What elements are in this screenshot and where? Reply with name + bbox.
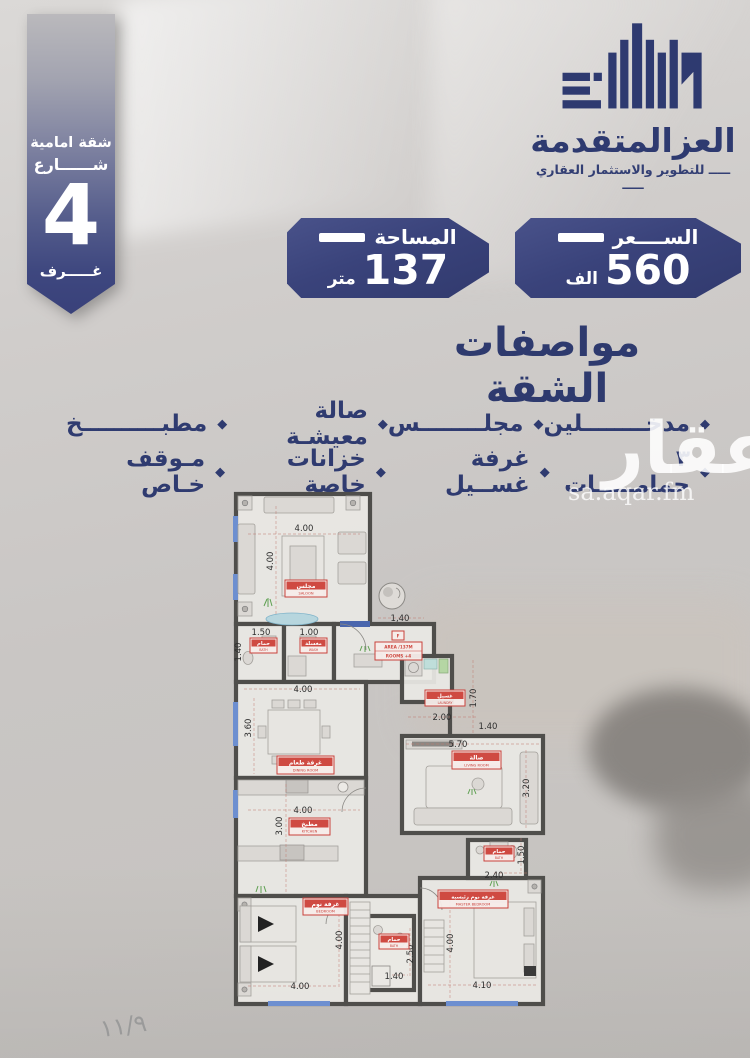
area-unit: متر bbox=[328, 269, 356, 289]
street-rooms-ribbon: شقة امامية شــــــارع 4 غـــــرف bbox=[27, 14, 115, 314]
page-number: ١١/٩ bbox=[98, 1009, 148, 1043]
svg-text:1.50: 1.50 bbox=[517, 846, 527, 865]
svg-text:غرفة طعام: غرفة طعام bbox=[289, 760, 322, 767]
svg-text:1,40: 1,40 bbox=[391, 614, 410, 624]
diamond-bullet-icon: ◆ bbox=[215, 465, 225, 480]
room-label-bath-mid: حمام BATH bbox=[379, 934, 409, 949]
svg-text:BEDROOM: BEDROOM bbox=[316, 910, 335, 914]
company-tagline: ـــــ للتطوير والاستثمار العقاري ـــــ bbox=[528, 162, 738, 192]
svg-text:1.40: 1.40 bbox=[385, 972, 404, 982]
svg-text:4.00: 4.00 bbox=[294, 685, 313, 695]
diamond-bullet-icon: ◆ bbox=[700, 465, 710, 480]
svg-text:غرفة نوم: غرفة نوم bbox=[312, 901, 340, 908]
svg-text:1.40: 1.40 bbox=[479, 722, 498, 732]
diamond-bullet-icon: ◆ bbox=[217, 417, 227, 432]
room-label-wash: مغسلة WASH bbox=[300, 638, 327, 653]
ribbon-rooms-label: غـــــرف bbox=[40, 262, 103, 280]
svg-text:DINING ROOM: DINING ROOM bbox=[293, 769, 318, 773]
room-label-bath-top: حمام BATH bbox=[250, 638, 277, 653]
svg-text:MASTER BEDROOM: MASTER BEDROOM bbox=[456, 903, 491, 907]
svg-text:BATH: BATH bbox=[495, 856, 504, 860]
svg-text:4.00: 4.00 bbox=[266, 552, 276, 571]
floor-plan: 4.00 4.00 1.50 1.00 1.40 1,40 4.00 3.60 … bbox=[228, 488, 546, 1010]
svg-text:3.00: 3.00 bbox=[275, 817, 285, 836]
svg-text:4.10: 4.10 bbox=[473, 981, 492, 991]
spec-entrances: مدخــــــــلين bbox=[544, 411, 690, 437]
area-value: 137 bbox=[363, 250, 449, 291]
listing-flyer: شقة امامية شــــــارع 4 غـــــرف العزالم bbox=[0, 0, 750, 1058]
aqar-domain-watermark: sa.aqar.fm bbox=[568, 478, 694, 506]
svg-text:1.00: 1.00 bbox=[300, 628, 319, 638]
company-logo-icon bbox=[554, 16, 712, 124]
room-label-master: غرفة نوم رئيسية MASTER BEDROOM bbox=[438, 890, 508, 908]
svg-text:BATH: BATH bbox=[259, 648, 268, 652]
svg-text:2.00: 2.00 bbox=[433, 713, 452, 723]
svg-text:مطبخ: مطبخ bbox=[301, 821, 318, 828]
svg-text:4.00: 4.00 bbox=[446, 934, 456, 953]
svg-text:AREA /137M: AREA /137M bbox=[384, 645, 412, 650]
svg-text:4+ ROOMS: 4+ ROOMS bbox=[386, 654, 412, 659]
company-logo: العزالمتقدمة ـــــ للتطوير والاستثمار ال… bbox=[528, 16, 738, 192]
svg-text:1.70: 1.70 bbox=[469, 689, 479, 708]
price-value: 560 bbox=[605, 250, 691, 291]
svg-text:BATH: BATH bbox=[390, 944, 399, 948]
room-label-saloon: مجلس SALOON bbox=[285, 580, 327, 597]
svg-text:LIVING ROOM: LIVING ROOM bbox=[464, 764, 488, 768]
svg-text:LAUNDRY: LAUNDRY bbox=[438, 701, 453, 705]
svg-text:SALOON: SALOON bbox=[298, 592, 313, 596]
svg-text:4.00: 4.00 bbox=[291, 982, 310, 992]
room-label-bedroom: غرفة نوم BEDROOM bbox=[303, 898, 348, 915]
svg-text:3.20: 3.20 bbox=[522, 779, 532, 798]
svg-text:5.70: 5.70 bbox=[449, 740, 468, 750]
diamond-bullet-icon: ◆ bbox=[534, 417, 544, 432]
spec-majlis: مجلــــــــس bbox=[388, 411, 524, 437]
company-name: العزالمتقدمة bbox=[528, 124, 738, 159]
diamond-bullet-icon: ◆ bbox=[376, 465, 386, 480]
spec-kitchen: مطبــــــــــخ bbox=[66, 411, 207, 437]
diamond-bullet-icon: ◆ bbox=[540, 465, 550, 480]
room-label-laundry: غسيل LAUNDRY bbox=[425, 690, 465, 706]
svg-text:1.50: 1.50 bbox=[252, 628, 271, 638]
area-chip: المساحة 137 متر bbox=[287, 218, 489, 298]
svg-text:صالة: صالة bbox=[470, 755, 484, 762]
svg-text:مجلس: مجلس bbox=[297, 583, 316, 590]
svg-text:2.40: 2.40 bbox=[485, 871, 504, 881]
svg-text:مغسلة: مغسلة bbox=[305, 641, 322, 647]
svg-text:حمام: حمام bbox=[493, 849, 506, 855]
price-unit: الف bbox=[565, 269, 597, 289]
svg-text:WASH: WASH bbox=[309, 648, 319, 652]
svg-text:غرفة نوم رئيسية: غرفة نوم رئيسية bbox=[451, 895, 495, 901]
svg-text:4.00: 4.00 bbox=[294, 806, 313, 816]
svg-text:حمام: حمام bbox=[257, 641, 270, 647]
svg-text:1.40: 1.40 bbox=[234, 643, 244, 662]
room-label-bath-master: حمام BATH bbox=[484, 846, 514, 861]
room-label-hall: صالة LIVING ROOM bbox=[452, 751, 501, 769]
background-ceiling-highlight bbox=[120, 0, 590, 239]
chip-dash-icon bbox=[558, 233, 604, 242]
spec-parking: مـوقف خـاص bbox=[62, 446, 205, 498]
room-label-kitchen: مطبخ KITCHEN bbox=[289, 818, 330, 835]
spec-living-hall: صالة معيشـة bbox=[227, 398, 368, 450]
room-label-dining: غرفة طعام DINING ROOM bbox=[277, 756, 334, 774]
diamond-bullet-icon: ◆ bbox=[378, 417, 388, 432]
svg-text:4.00: 4.00 bbox=[295, 524, 314, 534]
svg-text:3.60: 3.60 bbox=[244, 719, 254, 738]
svg-text:4.00: 4.00 bbox=[335, 931, 345, 950]
price-chip: الســــعر 560 الف bbox=[515, 218, 741, 298]
specs-row-1: ◆مدخــــــــلين ◆مجلــــــــس ◆صالة معيش… bbox=[66, 398, 710, 450]
background-shadow-blur bbox=[655, 780, 750, 890]
svg-text:حمام: حمام bbox=[388, 937, 401, 943]
chip-dash-icon bbox=[319, 233, 365, 242]
diamond-bullet-icon: ◆ bbox=[700, 417, 710, 432]
svg-text:F: F bbox=[397, 634, 400, 639]
ribbon-apartment-type: شقة امامية bbox=[30, 135, 112, 151]
svg-text:KITCHEN: KITCHEN bbox=[302, 830, 318, 834]
background-coffee-table-blur bbox=[588, 688, 750, 810]
svg-text:غسيل: غسيل bbox=[437, 694, 453, 700]
ribbon-rooms-number: 4 bbox=[42, 176, 100, 256]
